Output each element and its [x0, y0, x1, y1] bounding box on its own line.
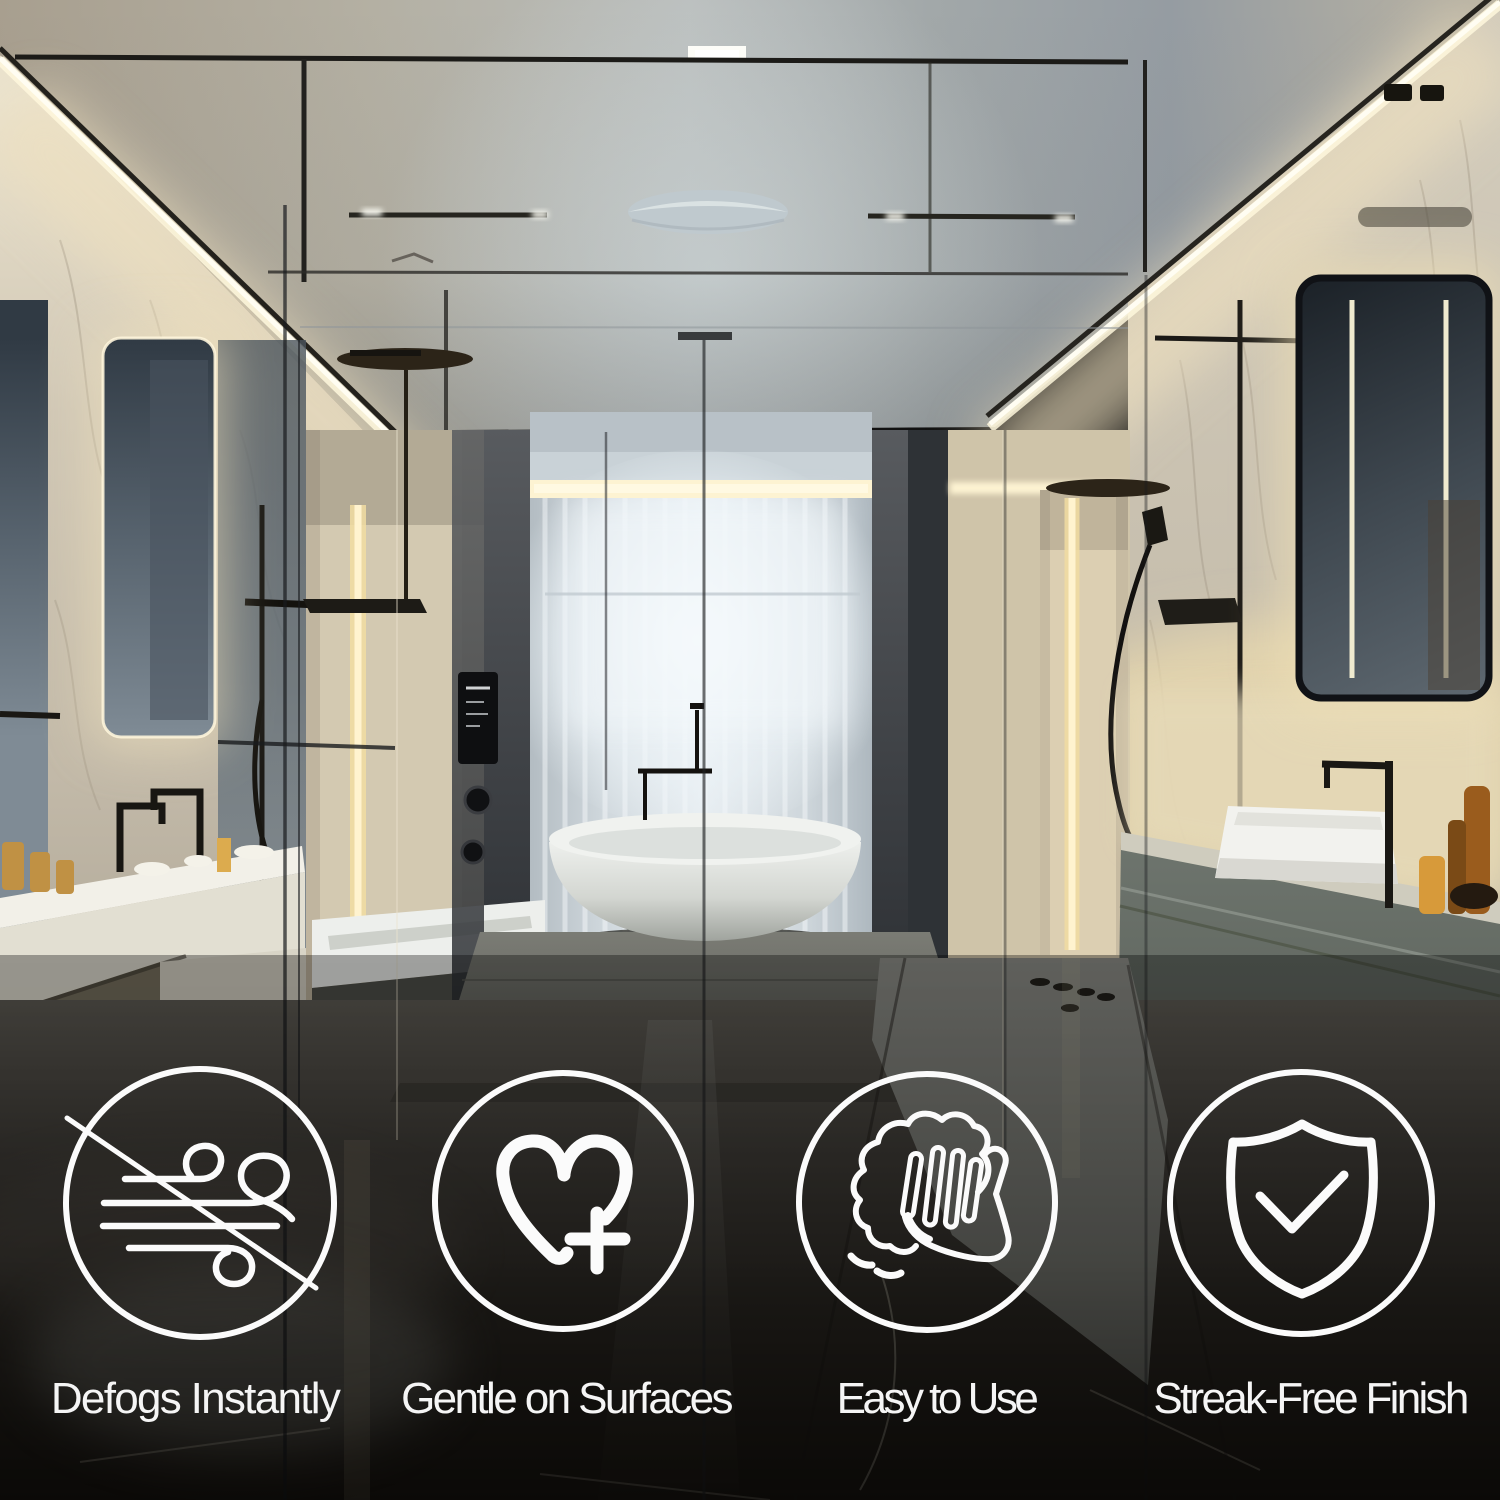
svg-text:Defogs Instantly: Defogs Instantly	[51, 1374, 341, 1423]
svg-text:Gentle on Surfaces: Gentle on Surfaces	[401, 1374, 732, 1423]
svg-text:Streak-Free Finish: Streak-Free Finish	[1153, 1374, 1467, 1423]
svg-text:Easy to Use: Easy to Use	[837, 1374, 1038, 1423]
